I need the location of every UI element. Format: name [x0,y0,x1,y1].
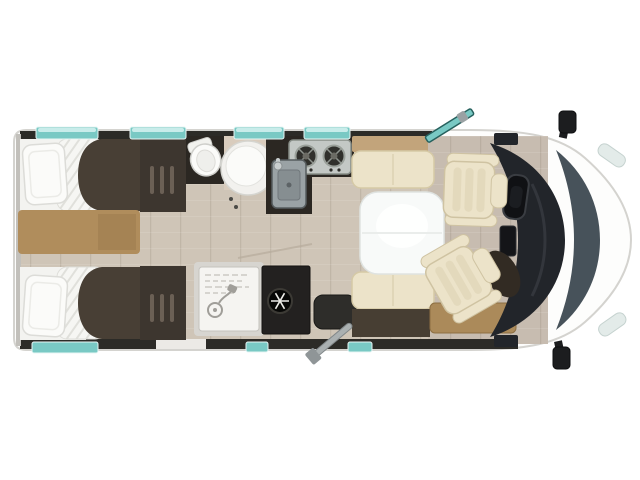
window [246,342,268,352]
side-mirror [559,111,576,139]
bed-bottom [20,266,186,340]
center-console [500,226,516,256]
wall-bottom-shower-section [156,339,206,349]
washbasin-inner [226,146,266,186]
table-highlight [376,204,428,248]
drawer-pull [170,294,174,322]
dash-corner-bottom [494,335,518,347]
window-highlight [236,128,282,132]
window-highlight [38,128,96,132]
headrest [490,174,507,209]
window-highlight [306,128,348,132]
bed-top [20,138,186,212]
dash-corner-top [494,133,518,145]
door-pivot-dot [234,205,238,209]
headlight [596,310,628,338]
drawer-pull [150,294,154,322]
headlight [596,141,628,169]
lower-cabinet [352,309,430,337]
fridge [262,266,310,334]
drawer-pull [160,294,164,322]
window [32,342,98,353]
shower-cubicle [194,262,264,336]
sideboard-top [352,136,428,152]
drawer-pull [150,166,154,194]
nightstand-shade [98,214,136,250]
floorplan-canvas [0,0,640,480]
pillow [22,143,68,206]
cushion-stripe [476,168,486,212]
burner [324,146,345,167]
drawer-pull [170,166,174,194]
snowflake-icon [268,289,292,313]
sink-drain [287,183,292,188]
window-highlight [132,128,184,132]
drawer-pull [160,166,164,194]
pillow [22,275,68,338]
faucet [274,162,282,170]
door-pivot-dot [229,197,233,201]
cushion-stripe [452,167,462,211]
side-mirror [553,340,570,369]
hob-knob [309,168,312,171]
hob-knob [337,168,340,171]
hob-knob [329,168,332,171]
cushion-stripe [464,168,474,212]
motorhome-floorplan [0,0,640,480]
shower-tray [199,267,259,331]
window [348,342,372,352]
